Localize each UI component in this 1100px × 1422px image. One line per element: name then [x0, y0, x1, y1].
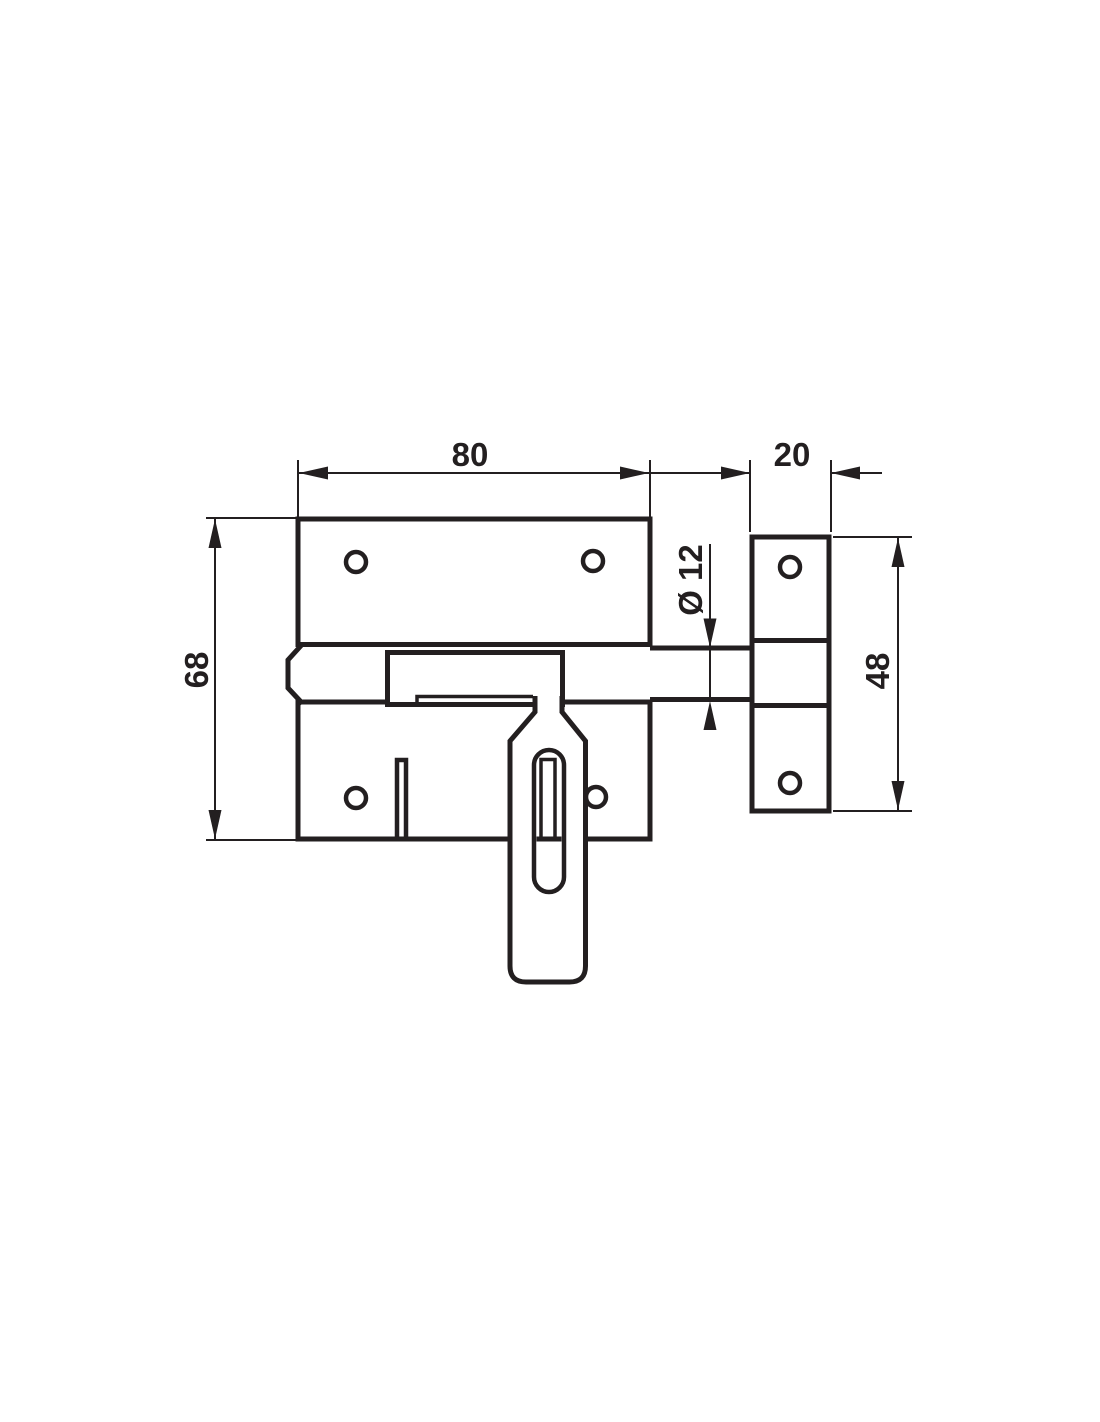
latch-plate-lower-outline	[298, 703, 650, 839]
arrow-left-icon	[831, 467, 860, 480]
arrow-up-icon	[892, 538, 905, 567]
screw-hole	[586, 787, 606, 807]
dim-plate-height: 68	[178, 518, 296, 840]
screw-hole	[346, 788, 366, 808]
dim-plate-width: 80	[298, 436, 750, 517]
drawing-page: 80 20 68 48	[0, 0, 1100, 1422]
dim-plate-height-lines	[206, 518, 296, 840]
screw-hole	[780, 773, 800, 793]
arrow-up-icon	[209, 519, 222, 548]
latch-assembly	[288, 519, 829, 982]
dim-plate-height-label: 68	[178, 652, 215, 689]
bolt-latch-technical-drawing: 80 20 68 48	[0, 0, 1100, 1422]
screw-hole	[780, 557, 800, 577]
dim-plate-width-label: 80	[452, 436, 489, 473]
arrow-down-icon	[704, 619, 717, 648]
dim-keeper-height-label: 48	[859, 653, 896, 690]
dim-keeper-width-label: 20	[774, 436, 811, 473]
arrow-down-icon	[209, 810, 222, 839]
latch-plate-upper-outline	[298, 519, 650, 644]
bolt-shaft	[650, 648, 754, 700]
screw-hole	[346, 552, 366, 572]
dim-plate-width-lines	[298, 460, 750, 517]
keeper-plate	[752, 537, 829, 811]
screw-hole	[583, 551, 603, 571]
arrow-left-icon	[299, 467, 328, 480]
arrow-down-icon	[892, 781, 905, 810]
pull-handle	[510, 696, 586, 982]
dim-keeper-height: 48	[833, 537, 912, 811]
dim-keeper-width-lines	[750, 460, 882, 532]
dim-bolt-diameter: Ø 12	[672, 544, 717, 730]
arrow-right-icon	[721, 467, 750, 480]
dim-keeper-width: 20	[721, 436, 882, 532]
arrow-up-icon	[704, 701, 717, 730]
bolt-tip	[288, 644, 303, 704]
position-slot	[397, 760, 406, 837]
arrow-right-icon	[620, 467, 649, 480]
dim-bolt-diameter-label: Ø 12	[672, 544, 709, 616]
